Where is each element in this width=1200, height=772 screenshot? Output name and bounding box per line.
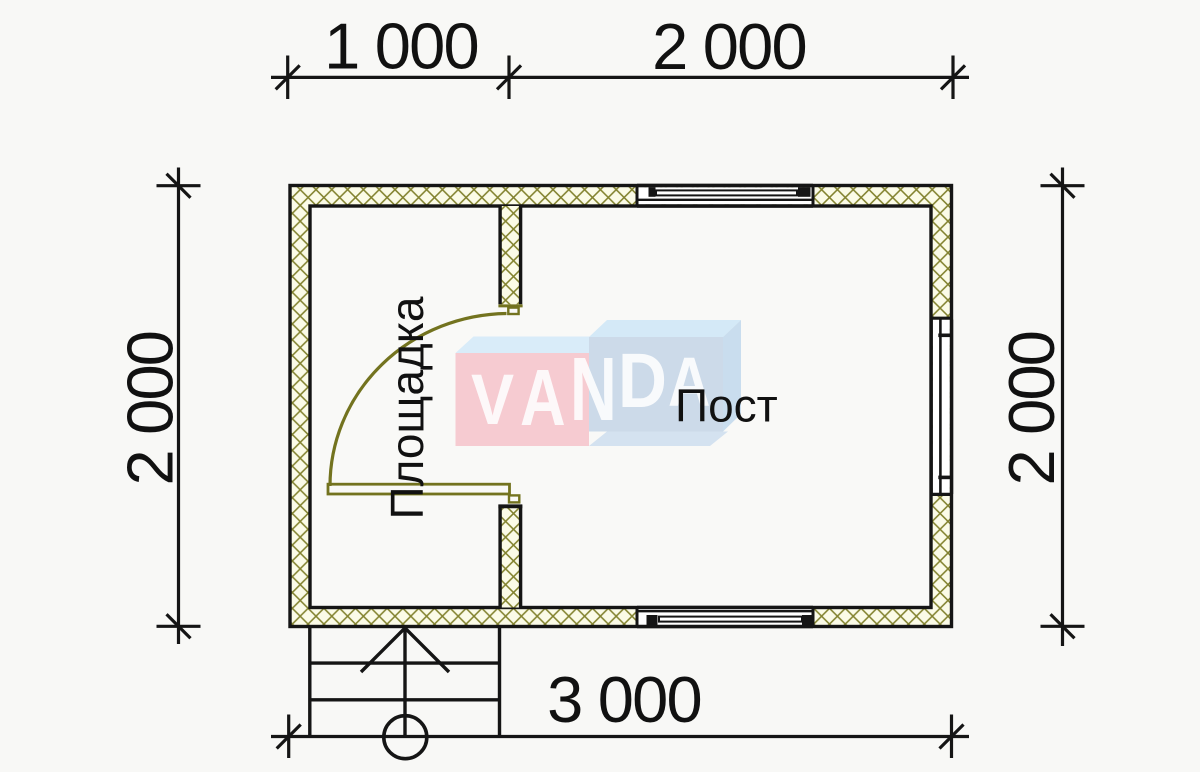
svg-text:3 000: 3 000 — [547, 663, 701, 736]
svg-text:Пост: Пост — [675, 380, 778, 432]
svg-text:V: V — [471, 361, 514, 439]
svg-text:D: D — [618, 338, 667, 424]
svg-text:Площадка: Площадка — [381, 296, 433, 519]
svg-text:1 000: 1 000 — [324, 10, 478, 83]
svg-text:2 000: 2 000 — [114, 332, 187, 486]
svg-text:A: A — [520, 354, 566, 443]
svg-text:2 000: 2 000 — [995, 332, 1068, 486]
svg-text:N: N — [570, 339, 617, 440]
svg-text:2 000: 2 000 — [652, 10, 806, 83]
